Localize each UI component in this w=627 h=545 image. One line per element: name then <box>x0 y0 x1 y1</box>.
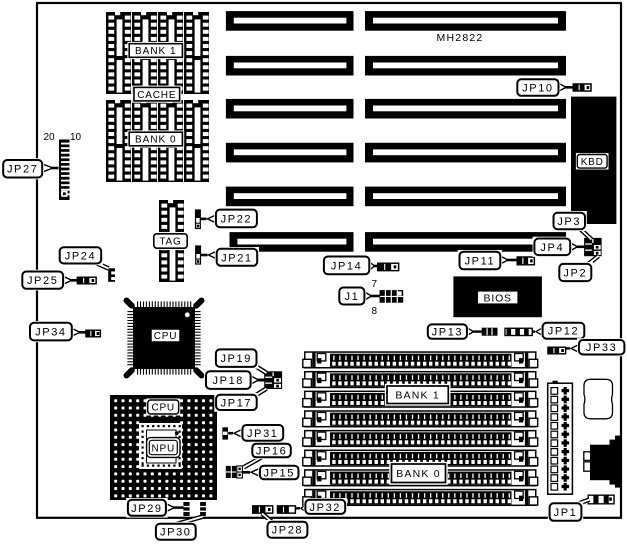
svg-text:TAG: TAG <box>159 237 181 248</box>
svg-text:JP1: JP1 <box>554 507 578 519</box>
svg-text:JP10: JP10 <box>522 83 553 95</box>
svg-text:KBD: KBD <box>581 157 604 168</box>
svg-text:8: 8 <box>372 306 378 317</box>
svg-text:JP17: JP17 <box>221 397 252 409</box>
svg-text:JP13: JP13 <box>432 327 463 339</box>
svg-text:JP11: JP11 <box>465 256 496 268</box>
svg-text:JP25: JP25 <box>27 275 58 287</box>
svg-text:NPU: NPU <box>152 444 176 455</box>
svg-text:JP21: JP21 <box>221 252 252 264</box>
svg-text:BIOS: BIOS <box>484 292 512 304</box>
svg-text:JP29: JP29 <box>131 503 162 515</box>
svg-text:CPU: CPU <box>154 331 178 342</box>
svg-text:JP33: JP33 <box>586 342 617 354</box>
svg-text:MH2822: MH2822 <box>437 32 484 44</box>
svg-text:20: 20 <box>43 132 55 143</box>
svg-text:BANK 0: BANK 0 <box>396 468 441 480</box>
svg-text:JP16: JP16 <box>256 446 287 458</box>
svg-text:JP12: JP12 <box>548 326 579 338</box>
svg-text:JP19: JP19 <box>220 353 251 365</box>
svg-text:JP3: JP3 <box>557 216 581 228</box>
svg-text:JP18: JP18 <box>213 375 244 387</box>
svg-text:JP27: JP27 <box>7 164 38 176</box>
svg-text:JP15: JP15 <box>263 468 294 480</box>
svg-text:JP32: JP32 <box>310 502 341 514</box>
svg-text:JP4: JP4 <box>540 242 564 254</box>
svg-text:J1: J1 <box>344 291 359 303</box>
svg-text:BANK 0: BANK 0 <box>135 135 177 146</box>
svg-text:JP34: JP34 <box>35 327 66 339</box>
svg-text:JP31: JP31 <box>247 428 278 440</box>
svg-text:JP24: JP24 <box>65 250 96 262</box>
svg-text:BANK 1: BANK 1 <box>135 46 177 57</box>
svg-text:JP22: JP22 <box>221 213 252 225</box>
svg-text:CPU: CPU <box>151 403 175 414</box>
svg-text:CACHE: CACHE <box>137 90 176 101</box>
svg-text:JP14: JP14 <box>331 260 362 272</box>
svg-text:JP2: JP2 <box>563 268 587 280</box>
svg-text:10: 10 <box>70 132 82 143</box>
svg-text:JP30: JP30 <box>160 527 191 539</box>
svg-text:7: 7 <box>372 279 378 290</box>
svg-text:BANK 1: BANK 1 <box>395 390 440 402</box>
svg-text:JP28: JP28 <box>272 525 303 537</box>
